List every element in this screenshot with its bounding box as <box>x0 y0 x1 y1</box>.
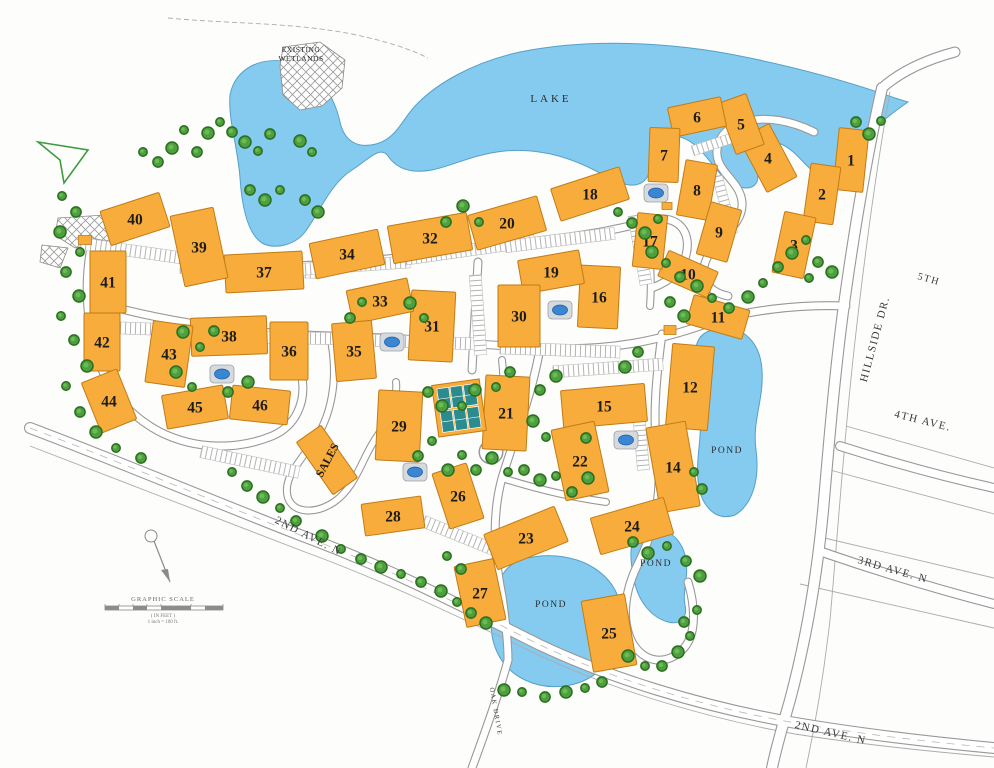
tree <box>57 312 65 320</box>
tree <box>90 426 102 438</box>
building-number-12: 12 <box>682 380 698 397</box>
tree <box>312 206 324 218</box>
street-label-3: 4TH AVE. <box>893 408 952 434</box>
tree <box>863 128 875 140</box>
tree <box>641 662 649 670</box>
pool-2 <box>210 365 234 383</box>
building-number-39: 39 <box>191 240 207 257</box>
boundary-line-6 <box>800 584 994 628</box>
building-number-26: 26 <box>450 489 466 506</box>
pond-label-3: POND <box>640 559 672 569</box>
tree <box>877 117 885 125</box>
tree <box>813 257 823 267</box>
tree <box>443 552 451 560</box>
tree <box>518 688 526 696</box>
pond-label-1: POND <box>711 446 743 456</box>
tree <box>81 360 93 372</box>
site-plan-svg: 1234567891011121415161718192021222324252… <box>0 0 994 768</box>
tree <box>642 547 654 559</box>
building-number-46: 46 <box>252 398 268 415</box>
tree <box>254 147 262 155</box>
tree <box>708 294 716 302</box>
tree <box>227 127 237 137</box>
building-number-41: 41 <box>100 275 116 292</box>
building-number-35: 35 <box>346 344 362 361</box>
tree <box>519 465 529 475</box>
tree <box>69 335 79 345</box>
tree <box>619 361 631 373</box>
building-number-38: 38 <box>221 329 237 346</box>
tree <box>486 452 498 464</box>
site-plan-map: 1234567891011121415161718192021222324252… <box>0 0 994 768</box>
tree <box>276 504 284 512</box>
tree <box>475 218 483 226</box>
tree <box>665 297 675 307</box>
boundary-line-3 <box>846 426 994 468</box>
tree <box>560 686 572 698</box>
tree <box>397 570 405 578</box>
graphic-scale-inch: 1 inch = 100 ft. <box>148 620 179 625</box>
tree <box>423 387 433 397</box>
tree <box>300 195 310 205</box>
tree <box>441 217 451 227</box>
tree <box>435 585 447 597</box>
tree <box>628 537 638 547</box>
tree <box>691 280 703 292</box>
lake-label: LAKE <box>530 93 571 105</box>
tree <box>542 433 550 441</box>
tree <box>690 468 698 476</box>
tree <box>54 226 66 238</box>
building-number-19: 19 <box>543 265 559 282</box>
tree <box>678 310 690 322</box>
tree <box>614 208 622 216</box>
building-number-36: 36 <box>281 344 297 361</box>
street-label-7: 5TH <box>916 271 941 288</box>
tree <box>582 472 594 484</box>
tree <box>170 366 182 378</box>
tree <box>136 453 146 463</box>
tree <box>581 684 589 692</box>
building-number-7: 7 <box>660 148 668 165</box>
building-number-40: 40 <box>127 212 143 229</box>
pond-label-2: POND <box>535 600 567 610</box>
tree <box>416 577 426 587</box>
graphic-scale-title: GRAPHIC SCALE <box>131 596 195 603</box>
tree <box>139 148 147 156</box>
tree <box>567 487 577 497</box>
building-number-6: 6 <box>693 110 701 127</box>
tree <box>257 491 269 503</box>
tree <box>759 279 767 287</box>
tree <box>622 650 634 662</box>
pool-5 <box>614 431 638 449</box>
green-boundary-marker <box>38 142 88 183</box>
wetland-hatch-3 <box>40 245 68 268</box>
tree <box>686 632 694 640</box>
tree <box>420 314 428 322</box>
tree <box>466 608 476 618</box>
tree <box>724 303 734 313</box>
tree <box>480 617 492 629</box>
tree <box>627 218 637 228</box>
tree <box>442 464 454 476</box>
building-number-33: 33 <box>372 294 388 311</box>
tree <box>345 313 355 323</box>
building-number-9: 9 <box>715 225 723 242</box>
tree <box>265 129 275 139</box>
tree <box>428 437 436 445</box>
tree <box>742 291 754 303</box>
tree <box>458 451 466 459</box>
tree <box>180 126 188 134</box>
tree <box>697 484 707 494</box>
tree <box>153 157 163 167</box>
building-number-11: 11 <box>711 310 726 327</box>
tree <box>456 564 466 574</box>
tree <box>534 474 546 486</box>
road-6 <box>472 660 508 768</box>
tree <box>693 606 701 614</box>
street-label-1: 2ND AVE. N <box>273 514 344 558</box>
tree <box>61 267 71 277</box>
building-number-15: 15 <box>596 399 612 416</box>
tree <box>535 385 545 395</box>
pool-3 <box>380 333 404 351</box>
building-number-20: 20 <box>499 216 515 233</box>
tree <box>672 646 684 658</box>
building-number-45: 45 <box>187 400 203 417</box>
tree <box>192 147 202 157</box>
tree <box>76 248 84 256</box>
building-number-30: 30 <box>511 309 527 326</box>
pool-6 <box>403 463 427 481</box>
tree <box>540 692 550 702</box>
tree <box>639 227 651 239</box>
tree <box>851 117 861 127</box>
building-number-23: 23 <box>518 531 534 548</box>
building-number-4: 4 <box>764 151 772 168</box>
tree <box>458 402 466 410</box>
building-number-25: 25 <box>601 626 617 643</box>
building-number-44: 44 <box>101 394 117 411</box>
tree <box>73 290 85 302</box>
building-number-5: 5 <box>737 117 745 134</box>
tree <box>358 298 366 306</box>
building-number-43: 43 <box>161 347 177 364</box>
building-number-37: 37 <box>256 265 272 282</box>
tree <box>209 326 219 336</box>
tree <box>453 598 461 606</box>
tree <box>469 384 481 396</box>
tree <box>196 343 204 351</box>
tree <box>188 383 196 391</box>
building-number-2: 2 <box>818 187 826 204</box>
tree <box>663 542 671 550</box>
tree <box>471 465 481 475</box>
pool-1 <box>644 184 668 202</box>
tree <box>375 561 387 573</box>
tree <box>805 274 813 282</box>
tree <box>550 370 562 382</box>
boundary-line-4 <box>830 470 994 514</box>
tree <box>242 481 252 491</box>
tree <box>657 661 667 671</box>
tree <box>675 272 685 282</box>
tree <box>228 468 236 476</box>
tree <box>276 186 284 194</box>
building-number-1: 1 <box>847 153 855 170</box>
small-structure-1 <box>79 236 92 245</box>
tree <box>62 382 70 390</box>
street-label-2: HILLSIDE DR. <box>858 295 892 383</box>
tree <box>58 192 66 200</box>
road-4 <box>840 446 994 488</box>
building-number-27: 27 <box>472 586 488 603</box>
parking-row-15 <box>200 446 300 479</box>
tree <box>498 684 510 696</box>
graphic-scale: GRAPHIC SCALE( IN FEET )1 inch = 100 ft. <box>105 596 223 625</box>
building-number-42: 42 <box>94 335 110 352</box>
tree <box>504 468 512 476</box>
tree <box>436 400 448 412</box>
tree <box>786 247 798 259</box>
tree <box>826 266 838 278</box>
tree <box>457 200 469 212</box>
tree <box>802 236 810 244</box>
tree <box>216 118 224 126</box>
tree <box>552 472 560 480</box>
wetlands-label-1: EXISTING <box>282 45 321 54</box>
tree <box>694 570 706 582</box>
tree <box>773 262 783 272</box>
building-number-24: 24 <box>624 519 640 536</box>
north-arrow <box>145 530 170 582</box>
tree <box>679 617 689 627</box>
tree <box>633 347 643 357</box>
tree <box>112 444 120 452</box>
building-number-18: 18 <box>582 187 598 204</box>
wetlands-label-2: WETLANDS <box>278 54 323 63</box>
tree <box>71 207 81 217</box>
tree <box>413 451 423 461</box>
building-number-29: 29 <box>391 419 407 436</box>
pool-4 <box>548 301 572 319</box>
building-number-32: 32 <box>422 231 438 248</box>
tree <box>662 259 670 267</box>
parking-row-12 <box>553 358 664 378</box>
tree <box>239 136 251 148</box>
tree <box>259 194 271 206</box>
tree <box>505 367 515 377</box>
small-structure-3 <box>664 326 676 335</box>
tree <box>597 677 607 687</box>
tree <box>75 407 85 417</box>
building-number-28: 28 <box>385 509 401 526</box>
tree <box>245 185 255 195</box>
tree <box>356 554 366 564</box>
graphic-scale-feet: ( IN FEET ) <box>151 614 176 619</box>
tree <box>492 383 500 391</box>
building-number-16: 16 <box>591 290 607 307</box>
tree <box>654 215 662 223</box>
tree <box>404 297 416 309</box>
tree <box>166 142 178 154</box>
building-number-14: 14 <box>665 460 681 477</box>
tree <box>527 415 539 427</box>
building-number-22: 22 <box>572 454 588 471</box>
small-structure-2 <box>662 203 672 210</box>
tree <box>581 433 591 443</box>
building-number-8: 8 <box>693 183 701 200</box>
tree <box>681 556 691 566</box>
building-number-21: 21 <box>498 406 514 423</box>
tree <box>177 326 189 338</box>
tree <box>223 387 233 397</box>
tree <box>294 135 306 147</box>
tree <box>202 127 214 139</box>
tree <box>242 376 254 388</box>
building-number-34: 34 <box>339 247 355 264</box>
tree <box>308 148 316 156</box>
tree <box>646 246 658 258</box>
